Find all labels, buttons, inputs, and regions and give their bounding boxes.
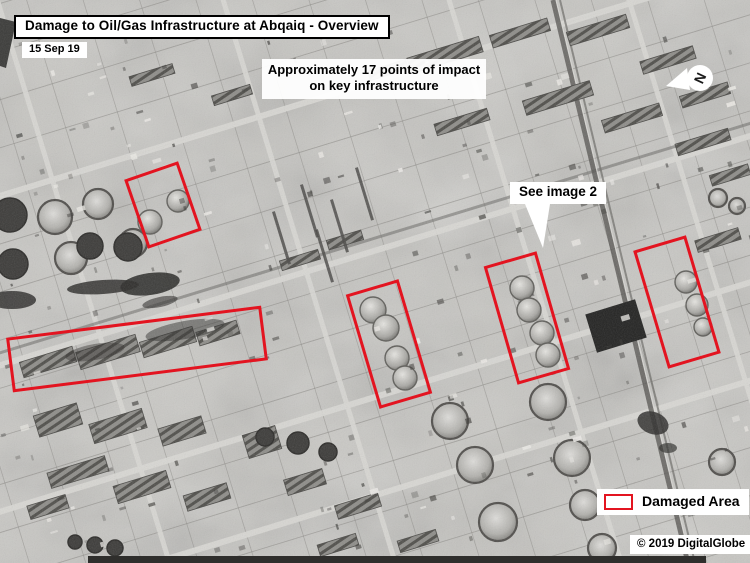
date-stamp: 15 Sep 19 [22,42,87,58]
annotated-satellite-view: N Damage to Oil/Gas Infrastructure at Ab… [0,0,750,563]
impact-count-note: Approximately 17 points of impact on key… [262,59,486,99]
legend-label: Damaged Area [642,493,740,511]
damaged-area-box [348,281,431,407]
legend: Damaged Area [597,489,749,515]
see-image-callout-pointer [525,204,550,248]
page-title: Damage to Oil/Gas Infrastructure at Abqa… [14,15,390,39]
damaged-area-box [126,163,200,247]
damaged-area-swatch-icon [604,494,633,510]
damaged-area-box [635,237,719,367]
damaged-area-box [485,253,568,383]
north-arrow-icon: N [666,65,713,91]
damaged-area-box [8,307,267,390]
copyright-credit: © 2019 DigitalGlobe [630,535,750,554]
see-image-2-callout: See image 2 [510,182,606,204]
